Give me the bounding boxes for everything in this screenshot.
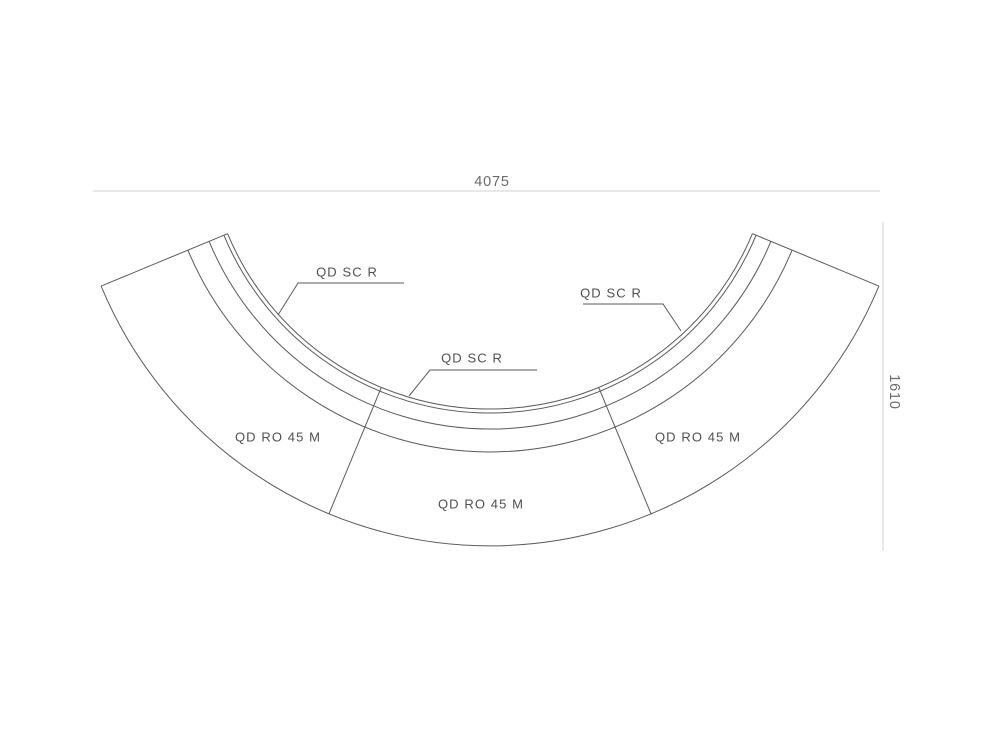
- screen-leader-right: [583, 304, 681, 331]
- screen-inner-arc: [228, 234, 753, 409]
- module-label-center: QD RO 45 M: [438, 497, 524, 512]
- technical-drawing-canvas: 4075 1610 QD SC R QD SC R QD SC R QD RO …: [0, 0, 1000, 755]
- screen-leader-left: [278, 283, 404, 315]
- desk-linework-svg: [0, 0, 1000, 755]
- screen-label-center: QD SC R: [441, 351, 503, 366]
- module-divider-right: [599, 387, 651, 514]
- screen-label-left: QD SC R: [316, 265, 378, 280]
- right-end-cap-line: [752, 234, 879, 286]
- module-label-left: QD RO 45 M: [235, 430, 321, 445]
- module-label-right: QD RO 45 M: [655, 430, 741, 445]
- width-dimension-value: 4075: [474, 174, 509, 190]
- screen-leader-center: [409, 370, 537, 396]
- screen-label-right: QD SC R: [580, 286, 642, 301]
- depth-dimension-value: 1610: [886, 374, 902, 409]
- module-divider-left: [329, 387, 381, 514]
- left-end-cap-line: [101, 234, 228, 286]
